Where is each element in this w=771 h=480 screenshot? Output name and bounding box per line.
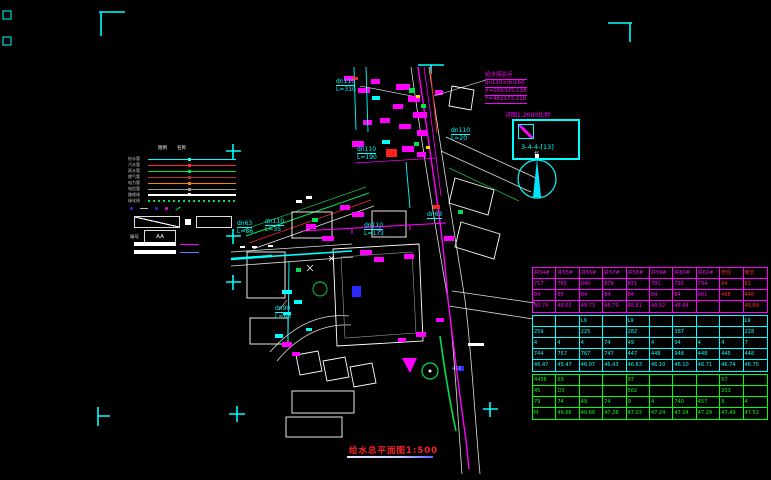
table-cell: 69: [556, 375, 579, 386]
connection-point-callout: 给水接驳点 dn110×dn160 X=266325.138 Y=482173.…: [485, 72, 527, 104]
table-row: L9L9L9: [533, 316, 767, 327]
table-cell: 84: [650, 290, 673, 301]
callout-coord-y: Y=482173.218: [485, 96, 527, 104]
legend-header: 名称: [177, 145, 186, 151]
table-cell: 47.49: [720, 408, 743, 419]
pipe-annotation: dn110 L=173: [364, 222, 384, 237]
pipe-length-label: L=35: [265, 226, 284, 233]
pipe-length-label: L=66: [275, 313, 291, 320]
table-cell: 948: [673, 349, 696, 360]
table-cell: 448: [697, 349, 720, 360]
table-cell: 46.07: [580, 360, 603, 371]
table-section-existing: 井54#井55#井56#井57#井58#井59#井60#井61#管径坡长7177…: [532, 267, 768, 313]
legend-header: 图例: [158, 145, 167, 151]
table-cell: 井55#: [556, 268, 579, 279]
pipe-length-label: L=86: [237, 228, 253, 235]
wall-bar-symbol: [134, 250, 176, 254]
table-cell: 74: [556, 397, 579, 408]
table-cell: 79: [533, 397, 556, 408]
table-cell: [673, 375, 696, 386]
table-cell: 4: [650, 338, 673, 349]
table-cell: 48.81: [627, 301, 650, 312]
legend-line-marker: [188, 170, 191, 173]
table-cell: 457: [697, 397, 720, 408]
table-cell: 47.24: [673, 408, 696, 419]
table-cell: 46.47: [533, 360, 556, 371]
table-cell: 井56#: [580, 268, 603, 279]
table-cell: [720, 316, 743, 327]
table-cell: 井60#: [673, 268, 696, 279]
table-row: 4456699757: [533, 375, 767, 386]
valve-symbol-icon: [130, 207, 133, 210]
table-row: 797449749474045794: [533, 397, 767, 408]
pipe-annotation: dn110 L=20: [451, 127, 470, 142]
legend-headers: 图例 名称: [158, 145, 186, 151]
table-cell: [650, 386, 673, 397]
table-cell: 47.03: [627, 408, 650, 419]
pipe-annotation: dn110 L=190: [357, 146, 377, 161]
table-cell: 46.71: [697, 360, 720, 371]
table-cell: 48.79: [603, 301, 626, 312]
pipe-size-label: dn63: [237, 220, 252, 228]
table-cell: 坡长: [744, 268, 767, 279]
pipe-size-label: dn63: [427, 211, 442, 219]
pipe-size-label: dn90: [275, 305, 290, 313]
hatch-symbol-icon: [518, 124, 534, 139]
table-cell: [580, 375, 603, 386]
table-cell: 84: [580, 290, 603, 301]
table-cell: 47.24: [650, 408, 673, 419]
pipe-length-label: L=20: [451, 135, 470, 142]
legend-item-line: [148, 194, 236, 196]
legend-line-marker: [188, 176, 191, 179]
legend-item-label: 绿化线: [128, 198, 148, 204]
well-data-table: 井54#井55#井56#井57#井58#井59#井60#井61#管径坡长7177…: [532, 267, 768, 422]
table-cell: [697, 386, 720, 397]
table-cell: 74: [603, 397, 626, 408]
table-cell: L9: [627, 316, 650, 327]
legend-symbols-row: [130, 207, 181, 210]
pipe-size-label: dn110: [451, 127, 470, 135]
table-cell: [697, 316, 720, 327]
detail-box-label: 详图1:2000比例: [505, 110, 550, 119]
table-cell: D3: [556, 386, 579, 397]
table-cell: 井61#: [697, 268, 720, 279]
plain-box-symbol: [196, 216, 232, 228]
table-row: 4447449494447: [533, 338, 767, 349]
legend-item-line: [148, 200, 236, 202]
table-cell: 48.73: [580, 301, 603, 312]
table-cell: 井57#: [603, 268, 626, 279]
table-cell: 47.29: [697, 408, 720, 419]
table-cell: 46.66: [556, 408, 579, 419]
table-row: 7177658468798717917927948481: [533, 279, 767, 290]
legend-item-line: [148, 177, 236, 178]
table-cell: [673, 386, 696, 397]
table-cell: 84: [533, 290, 556, 301]
table-cell: 46.66: [580, 408, 603, 419]
table-cell: 46.75: [744, 360, 767, 371]
table-cell: [603, 327, 626, 338]
table-cell: 4: [650, 397, 673, 408]
callout-line: dn110×dn160: [485, 80, 527, 88]
table-cell: 46.10: [673, 360, 696, 371]
table-cell: 448: [650, 349, 673, 360]
table-cell: L9: [744, 316, 767, 327]
legend-item: 绿化线: [128, 198, 236, 204]
table-cell: 203: [720, 386, 743, 397]
table-cell: 861: [697, 290, 720, 301]
pipe-size-label: dn110: [336, 78, 355, 86]
table-cell: 46.63: [627, 360, 650, 371]
table-cell: [720, 327, 743, 338]
table-row: 48.7448.6348.7348.7948.8148.8248.8448.69: [533, 301, 767, 312]
diagonal-box-symbol: [134, 216, 180, 228]
table-cell: L9: [580, 316, 603, 327]
table-cell: 84: [720, 279, 743, 290]
table-cell: 4: [720, 338, 743, 349]
square-symbol: [185, 219, 191, 225]
table-section-design: L9L9L92592252823872284447449494447744757…: [532, 315, 768, 372]
table-cell: 84: [673, 290, 696, 301]
water-pipes-magenta: [302, 67, 469, 469]
table-cell: [650, 375, 673, 386]
table-cell: [697, 327, 720, 338]
table-cell: 225: [580, 327, 603, 338]
table-cell: 744: [533, 349, 556, 360]
legend-item-line: [148, 171, 236, 172]
table-cell: 757: [556, 349, 579, 360]
symbol-divider: [140, 208, 148, 209]
table-cell: [744, 386, 767, 397]
table-cell: 747: [603, 349, 626, 360]
table-cell: [744, 375, 767, 386]
magenta-line-symbol: [180, 244, 199, 245]
table-cell: 49: [580, 397, 603, 408]
cad-canvas[interactable]: dn110 L=310 dn110 L=190 dn110 L=20 dn63 …: [0, 0, 771, 480]
table-cell: 9: [627, 397, 650, 408]
table-cell: 717: [533, 279, 556, 290]
table-cell: 井58#: [627, 268, 650, 279]
legend-line-marker: [188, 188, 191, 191]
table-cell: 446: [744, 290, 767, 301]
table-cell: 9: [720, 397, 743, 408]
tree-circles: [313, 282, 438, 379]
table-row: 46.4745.4746.0746.4346.6346.1046.1046.71…: [533, 360, 767, 371]
pipe-length-label: L=310: [336, 86, 356, 93]
table-cell: M: [533, 408, 556, 419]
table-cell: 792: [673, 279, 696, 290]
boundary-lines: [243, 168, 519, 431]
table-cell: [603, 316, 626, 327]
table-cell: 管径: [720, 268, 743, 279]
sheet-label-marks: [3, 11, 11, 45]
table-cell: 48.84: [673, 301, 696, 312]
legend-item-line: [148, 183, 236, 184]
table-cell: 448: [744, 349, 767, 360]
table-cell: 57: [720, 375, 743, 386]
pipe-size-label: dn110: [265, 218, 284, 226]
table-cell: 48.82: [650, 301, 673, 312]
table-cell: 502: [627, 386, 650, 397]
wall-bar-symbol: [134, 242, 176, 246]
table-cell: 282: [627, 327, 650, 338]
table-cell: 46.74: [720, 360, 743, 371]
table-cell: 4456: [533, 375, 556, 386]
table-cell: [673, 316, 696, 327]
table-cell: [533, 316, 556, 327]
north-label: 北: [534, 150, 539, 157]
table-row: 744757767747447448948448445448: [533, 349, 767, 360]
table-cell: 791: [650, 279, 673, 290]
table-cell: [650, 327, 673, 338]
table-cell: 97: [627, 375, 650, 386]
table-cell: [603, 375, 626, 386]
table-cell: 48.74: [533, 301, 556, 312]
table-cell: 846: [580, 279, 603, 290]
callout-coord-x: X=266325.138: [485, 88, 527, 96]
table-cell: 井54#: [533, 268, 556, 279]
table-cell: 45.47: [556, 360, 579, 371]
table-cell: 445: [720, 349, 743, 360]
marks-green: [296, 88, 463, 272]
table-cell: 387: [673, 327, 696, 338]
table-cell: 740: [673, 397, 696, 408]
table-cell: [556, 327, 579, 338]
pipe-annotation: dn110 L=35: [265, 218, 284, 233]
table-cell: 4: [744, 397, 767, 408]
legend-line-marker: [188, 193, 191, 196]
table-cell: 4: [580, 338, 603, 349]
table-cell: [697, 375, 720, 386]
title-underline: [347, 456, 433, 458]
table-cell: 871: [627, 279, 650, 290]
legend-line-marker: [188, 182, 191, 185]
pipe-length-label: L=190: [357, 154, 377, 161]
table-cell: 94: [673, 338, 696, 349]
pipe-annotation: dn63: [427, 211, 442, 219]
legend-boxes-row: [134, 216, 232, 228]
pipe-size-label: dn110: [364, 222, 383, 230]
table-cell: 794: [697, 279, 720, 290]
table-cell: 259: [533, 327, 556, 338]
table-cell: 48.69: [744, 301, 767, 312]
legend-items: 给水管污水管雨水管燃气管电力管电信管路缘线绿化线: [128, 156, 236, 204]
table-cell: 228: [744, 327, 767, 338]
slope-symbol-icon: [175, 206, 180, 210]
table-cell: 81: [744, 279, 767, 290]
table-cell: 井59#: [650, 268, 673, 279]
table-cell: 447: [627, 349, 650, 360]
table-cell: [697, 301, 720, 312]
table-row: 45D3502203: [533, 386, 767, 397]
table-cell: 85: [556, 290, 579, 301]
table-cell: 84: [627, 290, 650, 301]
table-cell: [603, 386, 626, 397]
table-cell: 47.52: [744, 408, 767, 419]
table-cell: 4: [556, 338, 579, 349]
table-row: 84858484848484861468446: [533, 290, 767, 301]
legend-item-line: [148, 159, 236, 160]
id-row-label: 编号: [130, 234, 139, 240]
table-cell: 48.63: [556, 301, 579, 312]
table-cell: 84: [603, 290, 626, 301]
table-cell: 47.28: [603, 408, 626, 419]
table-cell: 767: [580, 349, 603, 360]
table-cell: 74: [603, 338, 626, 349]
valve-symbol-icon: [155, 207, 158, 210]
pipe-length-label: L=173: [364, 230, 384, 237]
table-row: 井54#井55#井56#井57#井58#井59#井60#井61#管径坡长: [533, 268, 767, 279]
table-cell: 46.43: [603, 360, 626, 371]
table-cell: 7: [744, 338, 767, 349]
callout-line: 给水接驳点: [485, 72, 527, 80]
north-arrow-icon: [511, 152, 563, 204]
pipe-annotation: dn90 L=66: [275, 305, 291, 320]
table-cell: [556, 316, 579, 327]
table-cell: 468: [720, 290, 743, 301]
legend-line-marker: [188, 158, 191, 161]
table-row: M46.6646.6647.2847.0347.2447.2447.2947.4…: [533, 408, 767, 419]
legend-item-line: [148, 165, 236, 166]
table-cell: [720, 301, 743, 312]
table-cell: 4: [533, 338, 556, 349]
table-section-road: 445669975745D3502203797449749474045794M4…: [532, 374, 768, 420]
water-pipes-cyan: [231, 67, 410, 340]
legend-line-marker: [188, 164, 191, 167]
table-row: 259225282387228: [533, 327, 767, 338]
table-cell: [650, 316, 673, 327]
pipe-annotation: dn63 L=86: [237, 220, 253, 235]
table-cell: 46.10: [650, 360, 673, 371]
legend-item-line: [148, 189, 236, 190]
pipe-annotation: dn110 L=310: [336, 78, 356, 93]
drawing-title: 给水总平面图1:500: [349, 444, 438, 456]
table-cell: [580, 386, 603, 397]
table-cell: 879: [603, 279, 626, 290]
pipe-size-label: dn110: [357, 146, 376, 154]
table-cell: 45: [533, 386, 556, 397]
table-cell: 49: [627, 338, 650, 349]
table-cell: 765: [556, 279, 579, 290]
hydrant-symbol-icon: [165, 207, 168, 210]
point-elevation-label: 466: [452, 366, 462, 373]
blue-line-symbol: [180, 252, 199, 253]
table-cell: 4: [697, 338, 720, 349]
